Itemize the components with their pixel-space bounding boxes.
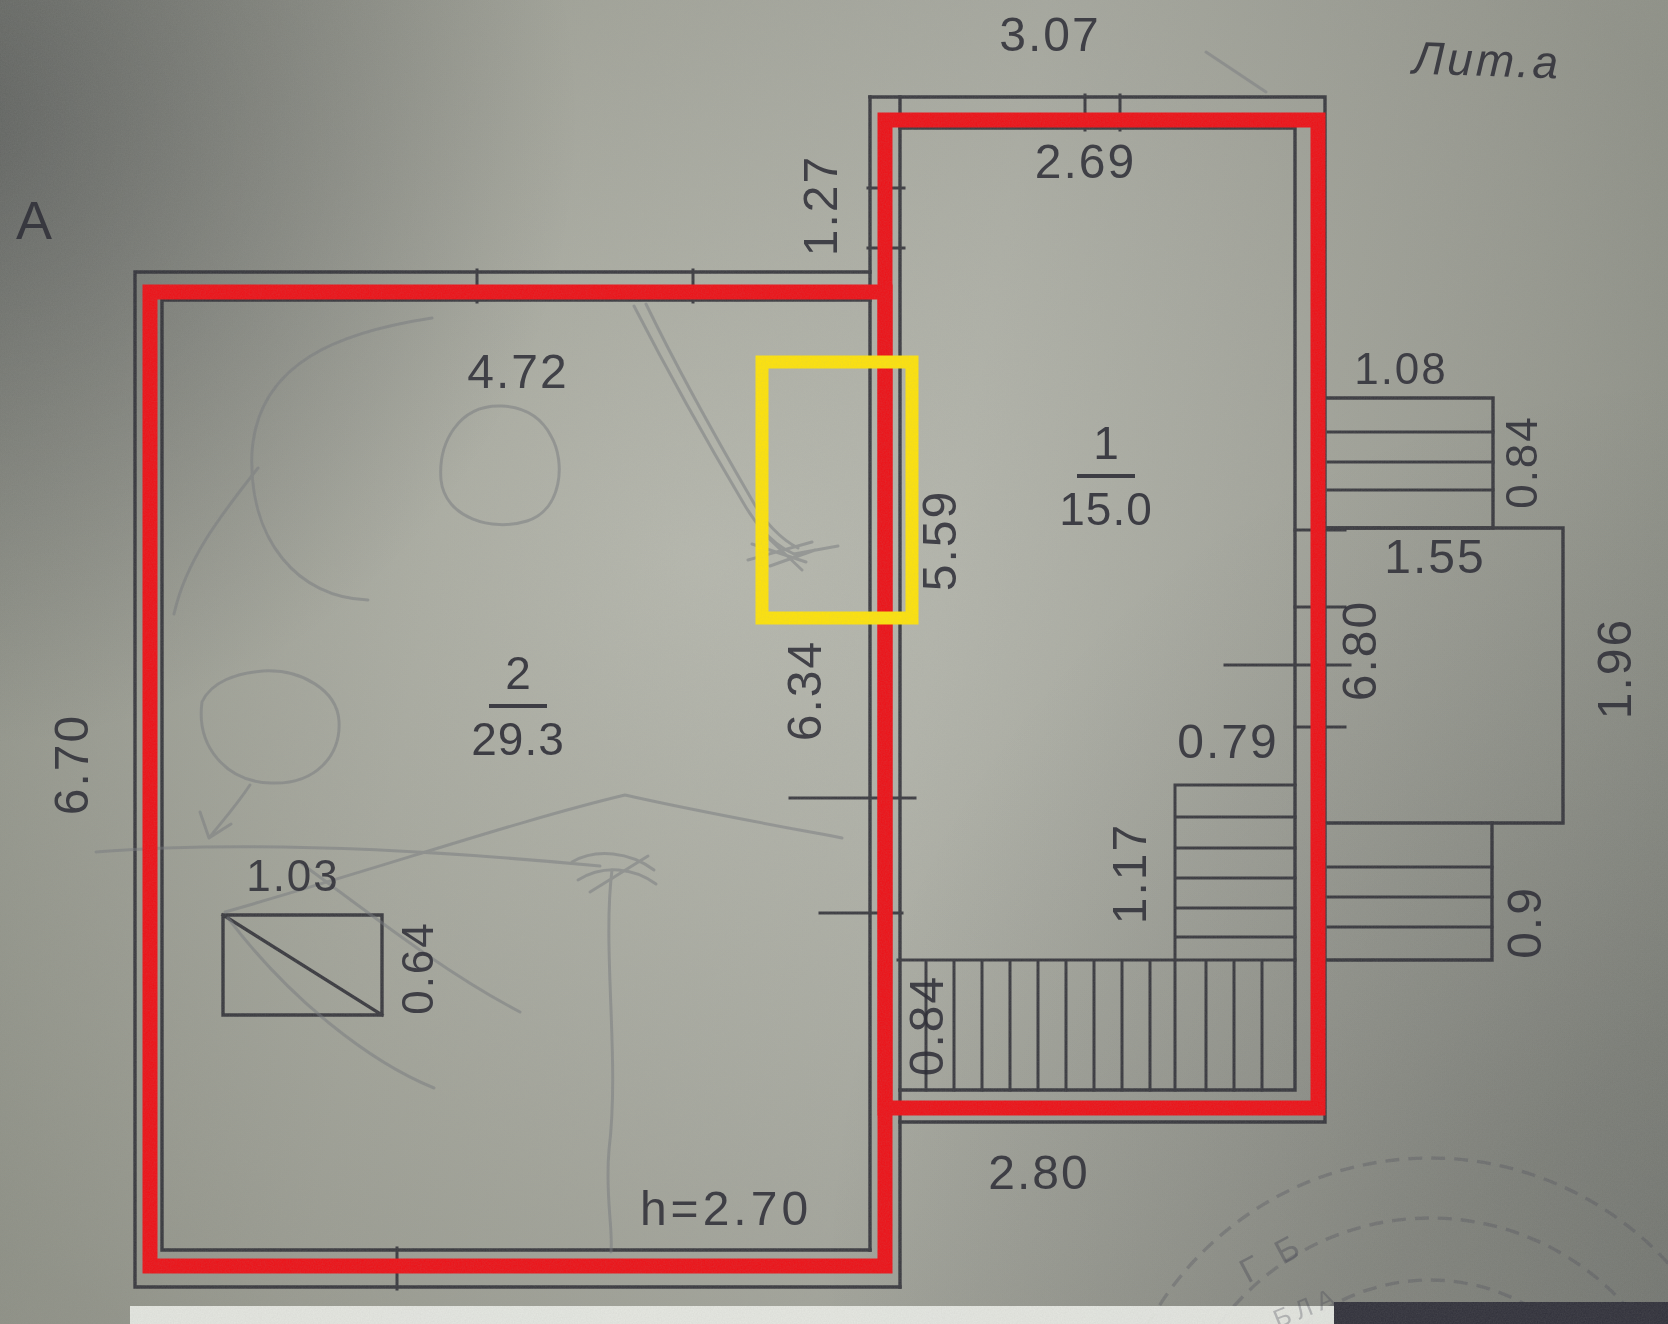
dim-building-top-width: 3.07 — [975, 8, 1125, 60]
dim-wall-offset-left: 1.27 — [796, 140, 846, 270]
dim-room2-width: 4.72 — [452, 346, 584, 396]
floorplan-photo: А Лит.а 3.07 1.27 2.69 4.72 5.59 6.34 6.… — [0, 0, 1668, 1324]
dim-veranda-width: 1.55 — [1375, 532, 1495, 580]
dim-room1-width: 2.69 — [1008, 136, 1163, 186]
dim-stairs-width: 0.79 — [1166, 716, 1290, 766]
dim-room2-wall-left: 6.70 — [46, 702, 98, 826]
ceiling-height-note: h=2.70 — [606, 1183, 846, 1233]
building-letter: А — [0, 190, 70, 250]
dim-room1-wall-right: 6.80 — [1334, 590, 1386, 710]
dim-steps-top-depth: 0.84 — [1496, 397, 1548, 527]
dim-stairs-depth: 1.17 — [1104, 813, 1156, 933]
dim-room1-bottom-width: 2.80 — [972, 1146, 1106, 1198]
liter-label: Лит.а — [1391, 25, 1583, 96]
room2-number: 2 — [489, 648, 547, 708]
dim-stove-width: 1.03 — [236, 853, 350, 899]
room1-number: 1 — [1077, 418, 1135, 478]
room1-label: 1 15.0 — [1040, 418, 1172, 535]
dim-steps-top-width: 1.08 — [1346, 346, 1456, 392]
room2-area: 29.3 — [471, 708, 565, 765]
dim-room1-wall-left: 5.59 — [914, 478, 966, 602]
dim-steps-bottom-depth: 0.9 — [1498, 872, 1550, 972]
dim-veranda-depth: 1.96 — [1589, 606, 1641, 730]
dim-lower-stairs-depth: 0.84 — [901, 965, 953, 1085]
dim-room2-wall-right: 6.34 — [779, 628, 831, 752]
dim-stove-depth: 0.64 — [392, 908, 444, 1028]
room2-label: 2 29.3 — [452, 648, 584, 765]
room1-area: 15.0 — [1059, 478, 1153, 535]
